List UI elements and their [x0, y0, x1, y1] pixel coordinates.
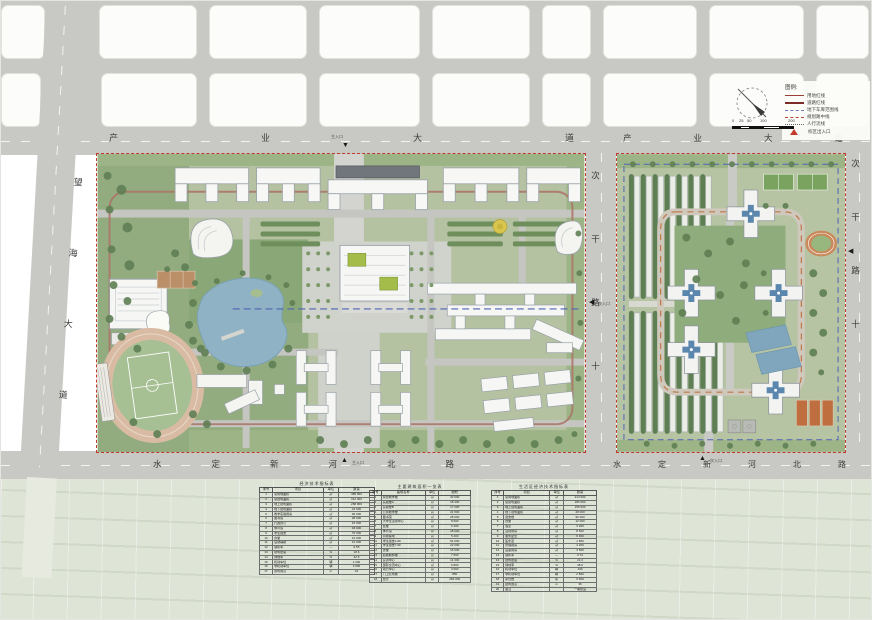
city-block — [1, 73, 41, 127]
city-block — [319, 5, 420, 59]
scale-bar-segments — [732, 126, 794, 129]
compass-icon — [732, 83, 772, 123]
legend-title: 图例: — [785, 83, 867, 91]
entrance-label-north: 主入口 — [331, 135, 343, 139]
auditorium-triangle-west — [191, 219, 233, 258]
table-title: 经济技术指标表 — [259, 482, 375, 486]
table-grid: 序号项目单位数量1总用地面积㎡214 0002总建筑面积㎡186 0003地上建… — [491, 490, 597, 592]
building-list-table: 主要建筑面积一览表 序号建筑名称单位面积1综合教学楼㎡32 6002实验楼A㎡1… — [369, 485, 471, 583]
line-swatch-solid-thick — [785, 102, 804, 104]
entrance-arrow-south-main: ▲ — [341, 457, 348, 464]
basketball-courts — [796, 400, 833, 426]
city-block — [709, 5, 804, 59]
site-plan-drawing: 产业大道 产业大道 水定新河北路 水定新河北路 望海大道 次干路十 次干路十 主… — [0, 0, 872, 620]
legend-row: 地下车库范围线 — [785, 108, 867, 113]
running-track — [805, 231, 837, 257]
entrance-label-south-east: 次入口 — [710, 459, 722, 463]
indicator-table-living: 生活区经济技术指标表 序号项目单位数量1总用地面积㎡214 0002总建筑面积㎡… — [491, 485, 597, 592]
city-block — [209, 5, 307, 59]
indicator-table-main: 经济技术指标表 序号项目单位数量1总用地面积㎡486 0002总建筑面积㎡312… — [259, 482, 375, 575]
legend-row: 道路红线 — [785, 101, 867, 106]
table-title: 生活区经济技术指标表 — [491, 485, 597, 489]
entrance-label-south-main: 主入口 — [352, 461, 364, 465]
table-grid: 序号建筑名称单位面积1综合教学楼㎡32 6002实验楼A㎡18 4003实验楼B… — [369, 490, 471, 583]
city-block — [101, 73, 197, 127]
auditorium-triangle-east — [555, 221, 582, 255]
entrance-arrow-east-center: ◀ — [589, 299, 594, 306]
road-label-secondary-east: 次干路十 — [851, 159, 860, 373]
road-label-shuiding-east: 水定新河北路 — [613, 461, 872, 469]
entrance-arrow-north: ▼ — [342, 142, 349, 149]
main-building — [340, 245, 410, 320]
legend-row: 用地红线 — [785, 94, 867, 99]
city-block — [816, 5, 869, 59]
city-block — [319, 73, 420, 127]
line-swatch-solid-thin — [785, 95, 804, 96]
entrance-arrow-south-east: ▲ — [699, 455, 706, 462]
city-block — [603, 5, 697, 59]
city-block — [209, 73, 307, 127]
road-label-shuiding-west: 水定新河北路 — [153, 460, 504, 469]
road-label-secondary-center: 次干路十 — [591, 171, 600, 425]
dome-building — [493, 220, 507, 234]
entrance-arrow-east-edge: ◀ — [848, 248, 853, 255]
city-block — [99, 5, 197, 59]
east-campus-map — [617, 154, 845, 452]
table-grid: 序号项目单位数量1总用地面积㎡486 0002总建筑面积㎡312 0003地上建… — [259, 487, 375, 575]
entrance-label-east-center: 次入口 — [598, 302, 610, 306]
table-title: 主要建筑面积一览表 — [369, 485, 471, 489]
scale-bar: 0 25 50 100 200 — [732, 118, 798, 132]
tennis-courts — [157, 271, 195, 288]
east-living-quarter — [616, 153, 846, 453]
city-block — [432, 73, 530, 127]
line-swatch-blue-dashed — [785, 110, 804, 111]
city-block — [542, 5, 591, 59]
city-block — [432, 5, 530, 59]
city-block — [542, 73, 591, 127]
road-wanghai-extension — [21, 477, 57, 579]
main-campus-map — [97, 154, 585, 452]
lake — [197, 278, 286, 366]
main-campus — [96, 153, 586, 453]
city-block — [1, 5, 45, 59]
city-block — [603, 73, 697, 127]
